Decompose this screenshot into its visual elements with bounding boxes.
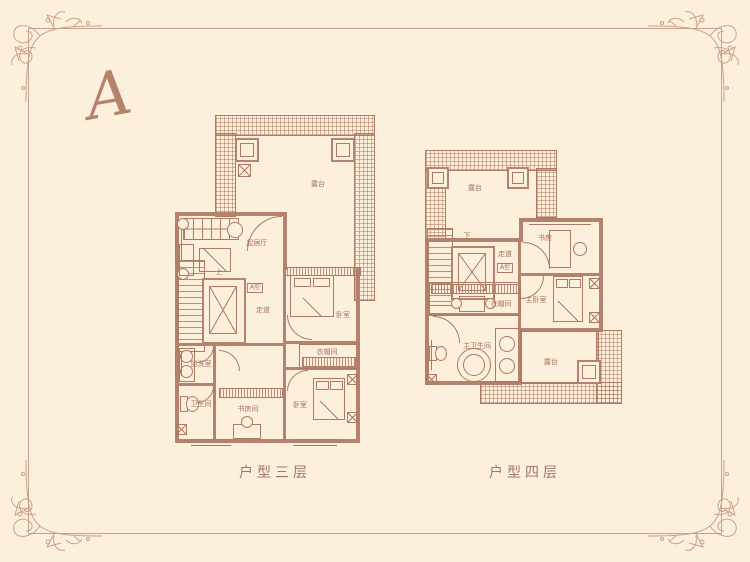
window [191, 439, 231, 446]
window-box-icon [589, 278, 600, 289]
floorplan-page: A 露台 上 起居厅 [0, 0, 750, 562]
room-label-closet: 衣帽间 [317, 348, 338, 356]
room-label-terrace: 露台 [468, 184, 482, 192]
closet-island [459, 296, 485, 312]
coffee-table [199, 248, 231, 272]
chair-icon [573, 242, 587, 256]
chair-icon [241, 416, 253, 428]
monogram-a: A [80, 55, 137, 135]
elevator-car [209, 286, 237, 334]
room-label-study: 书房间 [238, 405, 259, 413]
terrace-tile-border [215, 115, 375, 136]
floor-drain-icon [176, 424, 187, 435]
window [529, 218, 591, 225]
wall-segment [519, 218, 523, 242]
bed [290, 275, 334, 317]
pillow [330, 381, 343, 390]
side-table-icon [227, 222, 243, 238]
room-label-corridor: 走道 [498, 250, 512, 258]
blanket-fold [291, 298, 333, 316]
pillow [294, 278, 311, 287]
column [235, 138, 259, 162]
unit-type-badge: A型 [247, 283, 263, 293]
room-label-terrace2: 露台 [544, 358, 558, 366]
caption-fourth-floor: 户型四层 [425, 462, 625, 482]
window-box-icon [347, 374, 358, 385]
caption-third-floor: 户型三层 [175, 462, 375, 482]
bed [553, 276, 583, 322]
wall-segment [175, 212, 287, 216]
unit-type-badge: A型 [497, 263, 513, 273]
door-arc [523, 242, 550, 269]
stair-direction-label: 下 [464, 232, 471, 240]
room-label-bedroom2: 卧室 [293, 401, 307, 409]
room-label-bedroom: 卧室 [336, 311, 350, 319]
wardrobe-hatch [302, 357, 356, 367]
room-label-terrace: 露台 [311, 180, 325, 188]
door-arc [287, 370, 308, 391]
sink-icon [499, 336, 515, 352]
toilet-icon [435, 346, 447, 361]
wall-segment [175, 343, 285, 346]
window [175, 230, 182, 260]
pillow [316, 381, 329, 390]
room-label-closet: 衣帽间 [491, 300, 512, 308]
door-arc [247, 216, 282, 251]
desk [549, 230, 571, 268]
column [331, 138, 355, 162]
corner-flourish-icon [2, 460, 102, 560]
bed [313, 378, 345, 420]
blanket-fold [314, 401, 344, 419]
room-label-corridor: 走道 [256, 306, 270, 314]
plant-icon [177, 218, 189, 230]
chair-icon [451, 298, 462, 309]
terrace-tile-border [536, 168, 557, 218]
pillow [569, 279, 581, 288]
floorplan-fourth-floor: 露台 下 走道 A型 书房 衣帽间 [425, 150, 630, 410]
floor-drain-icon [426, 374, 437, 385]
column [507, 167, 529, 189]
column [427, 167, 449, 189]
wall-segment [213, 343, 216, 443]
bathtub-inner [463, 354, 485, 376]
sink-icon [499, 358, 515, 374]
wall-segment [283, 270, 286, 443]
corner-flourish-icon [648, 2, 748, 102]
floor-drain-icon [238, 164, 251, 177]
wall-segment [283, 212, 287, 270]
wardrobe-hatch [219, 388, 283, 398]
column [577, 360, 601, 384]
window-box-icon [347, 412, 358, 423]
door-arc [433, 316, 460, 343]
door-arc [219, 350, 240, 371]
floorplan-third-floor: 露台 上 起居厅 A型 走道 [175, 112, 375, 445]
blanket-fold [554, 301, 582, 321]
corner-flourish-icon [648, 460, 748, 560]
window-box-icon [589, 312, 600, 323]
wardrobe-hatch [431, 284, 519, 294]
window [293, 439, 337, 446]
window [175, 352, 182, 376]
window [425, 340, 432, 370]
door-arc [287, 315, 312, 340]
pillow [313, 278, 330, 287]
pillow [556, 279, 568, 288]
terrace-tile-border [215, 133, 236, 217]
terrace-tile-border [480, 382, 622, 404]
